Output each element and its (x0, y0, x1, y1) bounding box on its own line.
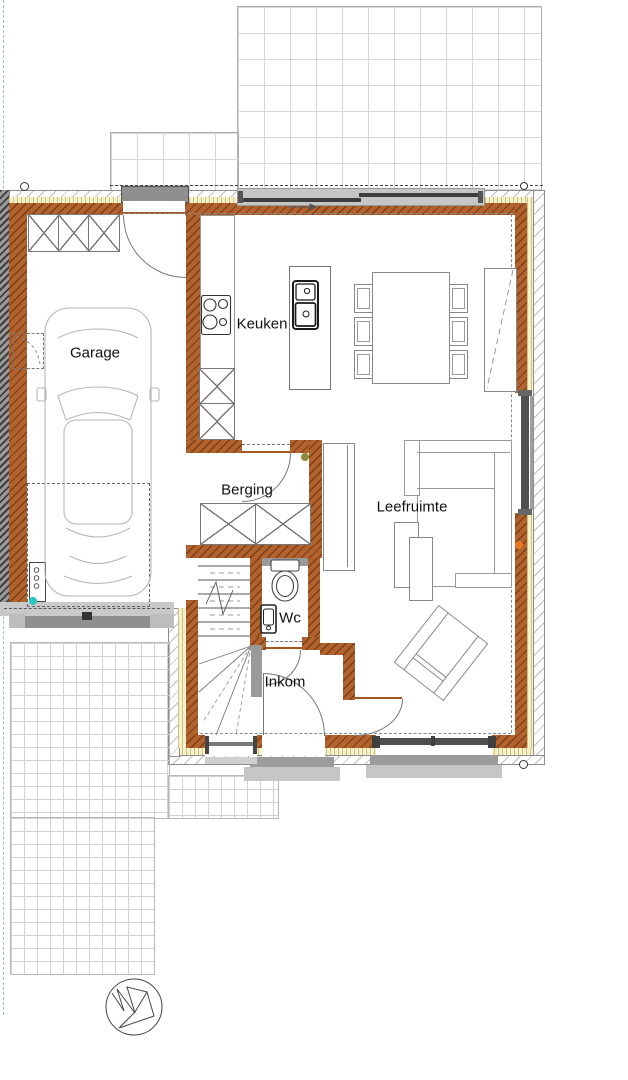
kitchen-island (289, 266, 331, 390)
sliding-door-panel (359, 193, 479, 197)
sliding-door-frame (237, 188, 485, 206)
duct (262, 558, 308, 566)
sliding-door-cap (238, 191, 243, 203)
dining-table (372, 272, 450, 384)
staircase (198, 566, 251, 735)
window-cap (253, 736, 257, 754)
storage-cabinet (200, 503, 257, 545)
window-cap (372, 736, 380, 748)
garage-door-dash (4, 608, 170, 609)
tall-cabinet (484, 268, 517, 392)
lintel-dash (266, 641, 302, 642)
toilet (271, 560, 299, 601)
wall-segment (186, 215, 200, 440)
dining-chair (449, 317, 468, 346)
room-label-garage: Garage (70, 345, 120, 362)
wall-segment (9, 203, 27, 602)
hand-basin (261, 605, 276, 633)
driveway-grid (10, 642, 170, 819)
rainwater-pipe (20, 182, 29, 191)
rainwater-pipe (519, 760, 528, 769)
doorstep (244, 767, 340, 781)
sofa-line (417, 452, 510, 453)
room-label-keuken: Keuken (237, 316, 288, 333)
window-sill (370, 755, 498, 765)
armchair (394, 606, 487, 701)
wall-segment (186, 600, 198, 735)
sofa-line (417, 488, 494, 489)
lintel-dash (242, 444, 290, 445)
room-label-wc: Wc (279, 610, 301, 627)
room-label-berging: Berging (221, 482, 273, 499)
exterior-cladding (533, 190, 545, 765)
driveway-grid (10, 817, 155, 975)
threshold (266, 647, 302, 649)
utility-dot-orange (515, 541, 523, 549)
dining-chair (354, 350, 373, 379)
rainwater-pipe (520, 182, 528, 190)
kitchen-cabinet (199, 403, 235, 440)
window-stairs (205, 742, 257, 746)
window-cap (518, 390, 532, 396)
window-outer-pane (530, 396, 533, 510)
room-label-leefruimte: Leefruimte (377, 499, 448, 516)
tv-cabinet-line (347, 445, 348, 567)
meter-niche (13, 333, 44, 369)
sliding-door-cap (478, 191, 483, 203)
dining-chair (449, 350, 468, 379)
doorstep (250, 757, 334, 767)
door-swing (355, 699, 403, 736)
sofa-footrest (455, 573, 512, 588)
door-leaf (355, 697, 402, 699)
wall-segment (343, 655, 355, 700)
wall-segment (320, 643, 355, 655)
terrace-grid-right (237, 6, 542, 192)
north-arrow-icon (106, 979, 162, 1035)
upper-floor-line (123, 213, 513, 214)
coffee-table (409, 537, 433, 601)
storage-cabinet (28, 214, 60, 252)
storage-cabinet (88, 214, 120, 252)
kitchen-cabinet (199, 368, 235, 405)
floor-plan: Garage Keuken Berging Leefruimte Wc Inko… (0, 0, 628, 1080)
party-wall (0, 190, 9, 602)
sliding-door-panel (243, 198, 361, 202)
storage-cabinet (58, 214, 90, 252)
garage-door-side (150, 614, 174, 628)
garage-door-handle (82, 612, 92, 620)
window-cap (488, 736, 496, 748)
garage-door-side (9, 614, 25, 628)
driveway-grid (168, 775, 279, 819)
kitchen-counter (200, 215, 235, 370)
utility-dot-olive (301, 453, 309, 461)
sofa-line (494, 452, 495, 575)
window-sill (205, 757, 257, 764)
room-label-inkom: Inkom (265, 674, 306, 691)
window-right (521, 396, 529, 510)
front-door-opening (262, 735, 325, 756)
window-cap (518, 509, 532, 515)
terrace-grid-left (110, 132, 239, 192)
parking-space-outline (27, 483, 150, 607)
insulation-layer (178, 608, 186, 748)
dining-chair (354, 317, 373, 346)
tv-cabinet (323, 443, 355, 571)
window-cap (205, 736, 209, 754)
dining-chair (354, 284, 373, 313)
door-swing (123, 215, 186, 278)
storage-cabinet (255, 503, 311, 545)
window-sill (366, 765, 502, 778)
wall-segment (186, 545, 322, 558)
dining-chair (449, 284, 468, 313)
radiator (251, 645, 262, 697)
window-mullion (431, 736, 435, 746)
